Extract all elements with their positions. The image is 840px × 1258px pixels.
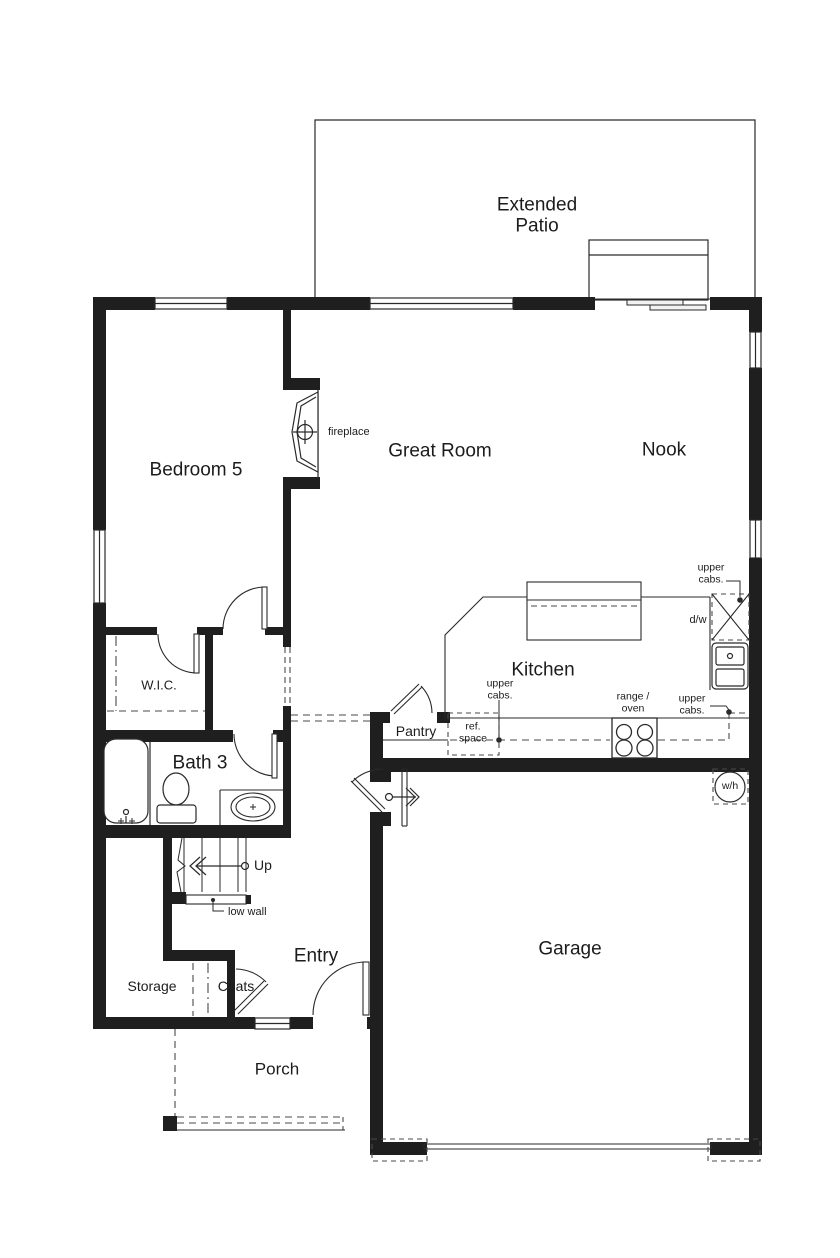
- room-label-extended-patio: Extended Patio: [497, 195, 577, 238]
- garage-door: [372, 1139, 760, 1161]
- room-label-bath3: Bath 3: [173, 752, 228, 773]
- wic-shelving: [107, 636, 205, 711]
- dishwasher: [712, 594, 749, 640]
- stairs-up-arrow: [190, 857, 249, 875]
- room-label-garage: Garage: [538, 938, 601, 959]
- interior-walls: [93, 297, 450, 1131]
- fireplace: [292, 390, 318, 477]
- range-oven-label: range / oven: [617, 691, 650, 715]
- room-label-nook: Nook: [642, 439, 686, 460]
- room-label-bedroom5: Bedroom 5: [150, 459, 243, 480]
- archway-dashed: [285, 647, 370, 721]
- upper-cabs-ref-label: upper cabs.: [487, 678, 514, 702]
- floor-plan-drawing: [0, 0, 840, 1258]
- range-oven: [612, 718, 657, 758]
- room-label-kitchen: Kitchen: [511, 659, 574, 680]
- room-label-entry: Entry: [294, 945, 338, 966]
- vanity-sink: [220, 790, 283, 825]
- closet-shelving: [193, 963, 208, 1016]
- dishwasher-label: d/w: [689, 614, 706, 626]
- fireplace-label: fireplace: [328, 426, 370, 438]
- room-label-coats: Coats: [218, 979, 255, 995]
- kitchen-island: [527, 582, 641, 640]
- upper-cabs-dw-label: upper cabs.: [698, 562, 725, 586]
- kitchen-sink: [712, 643, 748, 689]
- water-heater-label: w/h: [722, 781, 738, 793]
- toilet: [157, 773, 196, 823]
- room-label-storage: Storage: [127, 979, 176, 995]
- room-label-porch: Porch: [255, 1059, 299, 1078]
- room-label-pantry: Pantry: [396, 724, 436, 740]
- low-wall-label: low wall: [228, 906, 267, 918]
- floor-plan: Extended Patio Bedroom 5 Great Room Nook…: [0, 0, 840, 1258]
- room-label-great-room: Great Room: [388, 440, 491, 461]
- bathtub: [104, 739, 150, 825]
- stairs-up-label: Up: [254, 858, 272, 874]
- porch-outline: [175, 1029, 345, 1130]
- sliding-door: [595, 299, 710, 310]
- upper-cabs-right-label: upper cabs.: [679, 693, 706, 717]
- ref-space-label: ref. space: [459, 721, 487, 745]
- stairs: [177, 838, 246, 892]
- upper-cabinets: [450, 713, 749, 740]
- room-label-wic: W.I.C.: [141, 679, 176, 694]
